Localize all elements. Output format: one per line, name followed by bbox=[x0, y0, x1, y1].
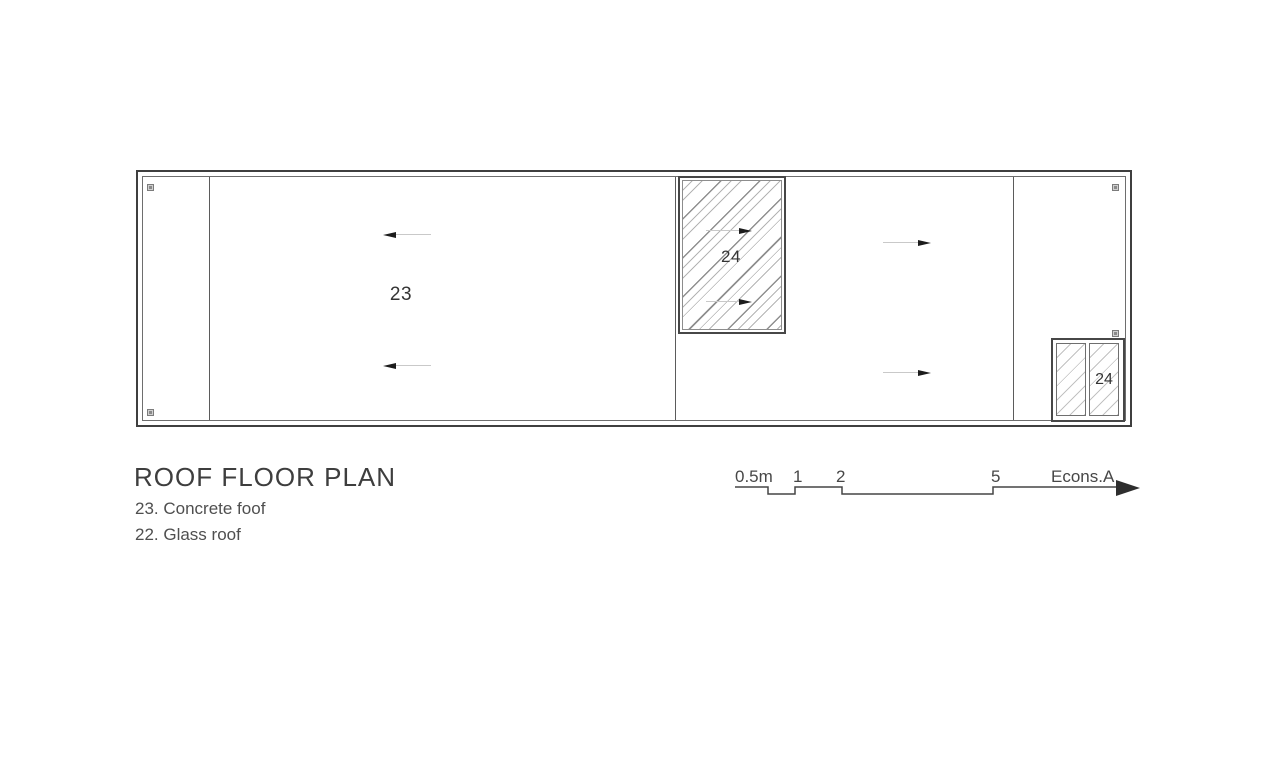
arrowhead-icon bbox=[739, 228, 752, 234]
slope-arrow-left-icon bbox=[383, 231, 431, 238]
arrowhead-icon bbox=[918, 370, 931, 376]
small-skylight-label: 24 bbox=[1095, 371, 1113, 389]
concrete-area-label: 23 bbox=[390, 284, 412, 306]
corner-marker-icon bbox=[1112, 330, 1119, 337]
slope-arrow-right-icon bbox=[883, 239, 931, 246]
glass-skylight: 24 bbox=[678, 176, 786, 334]
floor-plan-sheet: 23 24 24 bbox=[0, 0, 1268, 776]
bay-divider-left bbox=[209, 177, 210, 420]
bay-divider-middle bbox=[675, 177, 676, 420]
page-title: ROOF FLOOR PLAN bbox=[134, 462, 396, 493]
glass-pane: 24 bbox=[1089, 343, 1119, 416]
arrowhead-icon bbox=[383, 363, 396, 369]
slope-arrow-right-icon bbox=[706, 227, 752, 234]
arrow-shaft bbox=[396, 234, 431, 235]
slope-arrow-right-icon bbox=[706, 298, 752, 305]
legend-item-concrete: 23. Concrete foof bbox=[135, 499, 265, 519]
scale-signature: Econs.A bbox=[1051, 467, 1114, 487]
slope-arrow-left-icon bbox=[383, 362, 431, 369]
scale-tick-label: 1 bbox=[793, 467, 802, 487]
scale-tick-label: 0.5m bbox=[735, 467, 773, 487]
arrow-shaft bbox=[706, 301, 739, 302]
arrow-shaft bbox=[396, 365, 431, 366]
slope-arrow-right-icon bbox=[883, 369, 931, 376]
arrowhead-icon bbox=[739, 299, 752, 305]
corner-marker-icon bbox=[1112, 184, 1119, 191]
glass-pane bbox=[1056, 343, 1086, 416]
scale-tick-label: 5 bbox=[991, 467, 1000, 487]
scale-arrow-icon bbox=[1116, 480, 1140, 496]
small-glass-skylight: 24 bbox=[1051, 338, 1125, 422]
arrow-shaft bbox=[706, 230, 739, 231]
legend-item-glass: 22. Glass roof bbox=[135, 525, 241, 545]
arrow-shaft bbox=[883, 242, 918, 243]
bay-divider-right bbox=[1013, 177, 1014, 420]
scale-bar-line bbox=[735, 487, 1124, 494]
corner-marker-icon bbox=[147, 409, 154, 416]
plan-outline: 23 24 24 bbox=[136, 170, 1132, 427]
arrow-shaft bbox=[883, 372, 918, 373]
skylight-label: 24 bbox=[721, 247, 741, 267]
plan-inner-outline bbox=[142, 176, 1126, 421]
arrowhead-icon bbox=[383, 232, 396, 238]
scale-tick-label: 2 bbox=[836, 467, 845, 487]
arrowhead-icon bbox=[918, 240, 931, 246]
corner-marker-icon bbox=[147, 184, 154, 191]
